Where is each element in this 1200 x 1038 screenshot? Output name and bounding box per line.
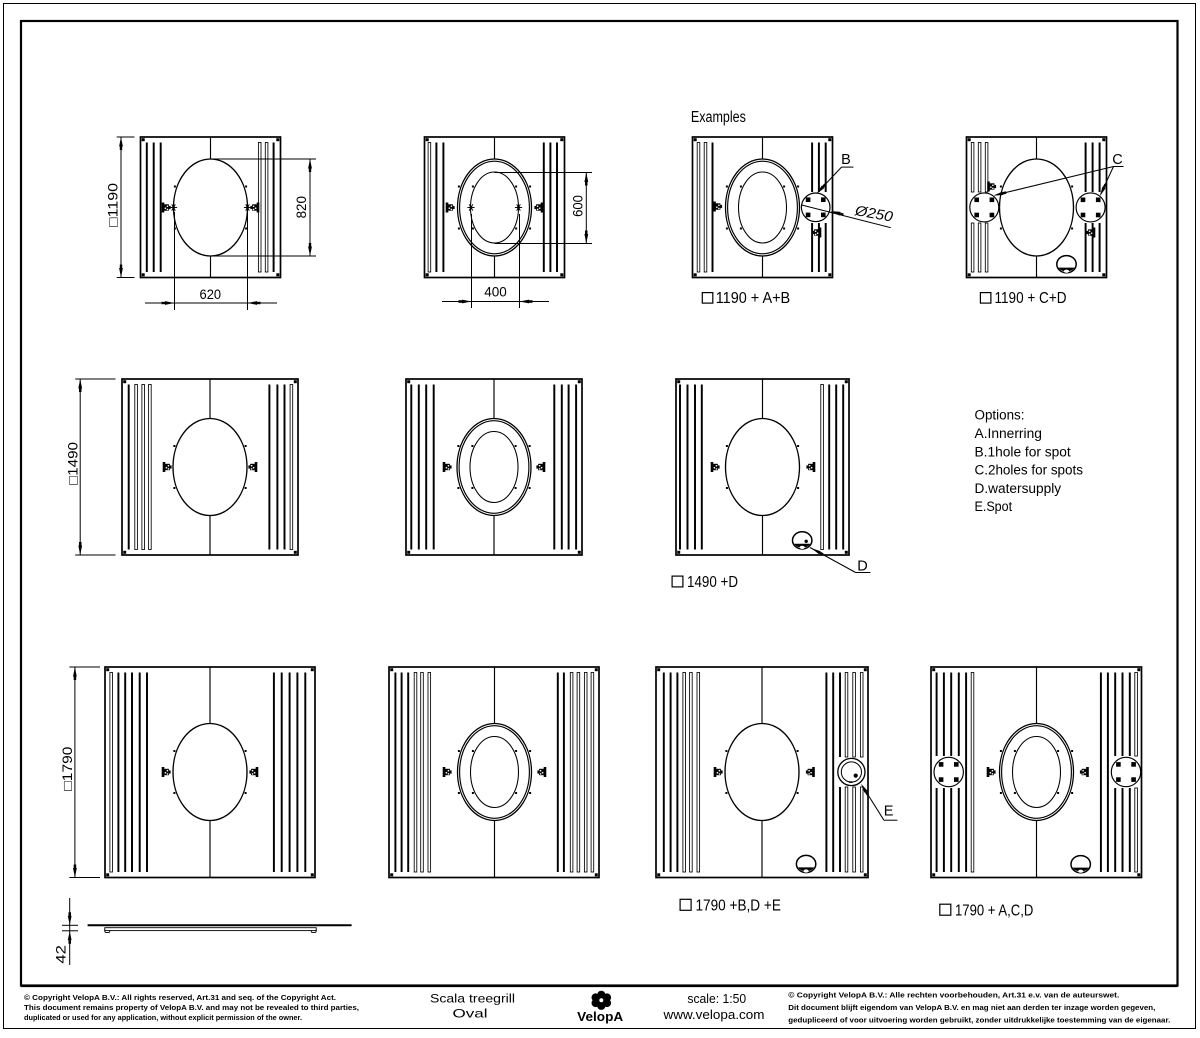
svg-text:600: 600 bbox=[570, 195, 585, 217]
svg-text:Oval: Oval bbox=[453, 1007, 488, 1021]
svg-text:Examples: Examples bbox=[691, 109, 746, 126]
svg-text:1190 + C+D: 1190 + C+D bbox=[995, 290, 1067, 307]
svg-text:Options:: Options: bbox=[975, 408, 1025, 424]
svg-text:Scala treegrill: Scala treegrill bbox=[430, 992, 515, 1006]
svg-text:1790 +B,D +E: 1790 +B,D +E bbox=[696, 898, 781, 915]
svg-text:820: 820 bbox=[294, 196, 309, 218]
svg-text:620: 620 bbox=[200, 287, 222, 302]
svg-text:C: C bbox=[1112, 152, 1122, 168]
svg-text:C.2holes for spots: C.2holes for spots bbox=[975, 463, 1084, 479]
svg-text:gedupliceerd of voor uitvoerin: gedupliceerd of voor uitvoering worden g… bbox=[788, 1015, 1170, 1024]
svg-text:42: 42 bbox=[54, 945, 69, 964]
svg-text:E: E bbox=[884, 803, 894, 819]
svg-text:A.Innerring: A.Innerring bbox=[975, 426, 1042, 442]
svg-text:E.Spot: E.Spot bbox=[975, 499, 1013, 515]
svg-text:□1190: □1190 bbox=[106, 183, 121, 227]
svg-text:D: D bbox=[857, 558, 867, 574]
svg-text:scale: 1:50: scale: 1:50 bbox=[687, 992, 746, 1006]
svg-text:duplicated or used for any app: duplicated or used for any application, … bbox=[24, 1013, 302, 1022]
svg-text:www.velopa.com: www.velopa.com bbox=[662, 1008, 764, 1022]
svg-text:This document remains property: This document remains property of VelopA… bbox=[24, 1003, 359, 1012]
svg-text:B: B bbox=[841, 152, 851, 168]
svg-text:© Copyright VelopA B.V.: Alle: © Copyright VelopA B.V.: Alle rechten vo… bbox=[788, 990, 1119, 999]
svg-text:1190 + A+B: 1190 + A+B bbox=[716, 290, 791, 307]
svg-text:VelopA: VelopA bbox=[577, 1009, 624, 1024]
svg-text:B.1hole for spot: B.1hole for spot bbox=[975, 444, 1071, 460]
svg-text:□1790: □1790 bbox=[60, 747, 75, 791]
svg-text:400: 400 bbox=[484, 284, 507, 299]
svg-text:□1490: □1490 bbox=[66, 442, 81, 485]
svg-text:1490 +D: 1490 +D bbox=[687, 574, 738, 591]
svg-text:1790 + A,C,D: 1790 + A,C,D bbox=[955, 903, 1033, 920]
svg-text:Dit document blijft eigendom v: Dit document blijft eigendom van VelopA … bbox=[788, 1003, 1155, 1012]
svg-text:D.watersupply: D.watersupply bbox=[975, 481, 1062, 497]
svg-text:© Copyright VelopA B.V.: All r: © Copyright VelopA B.V.: All rights rese… bbox=[24, 993, 336, 1002]
